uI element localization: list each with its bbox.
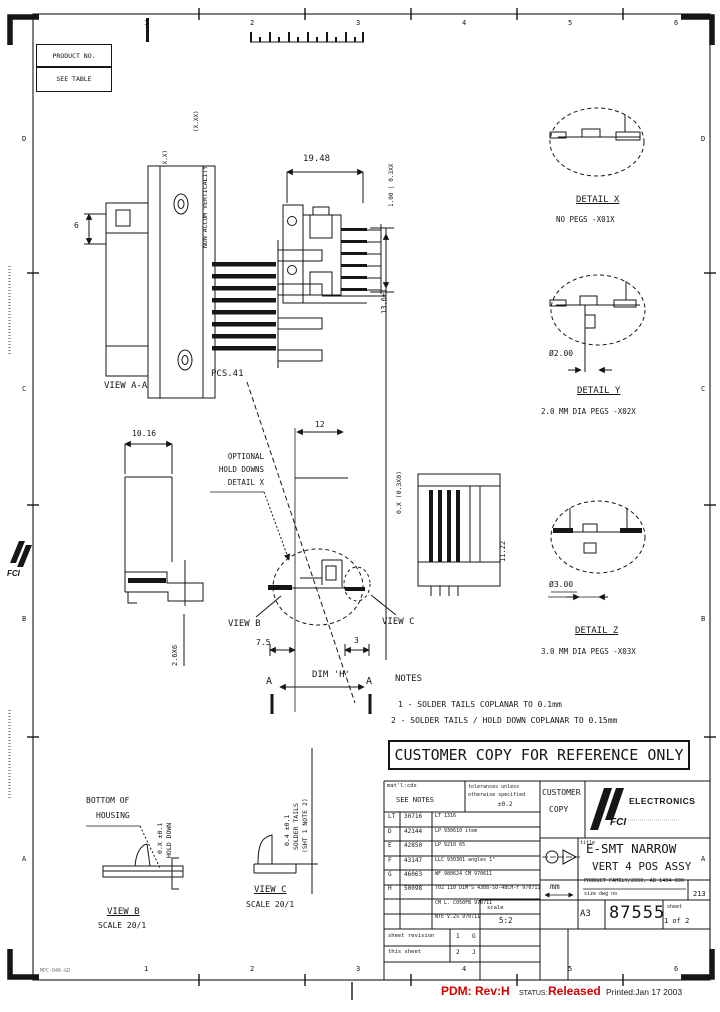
optional-line-1: OPTIONAL (210, 453, 264, 461)
detail-x-linework (550, 108, 644, 176)
notes-title: NOTES (395, 675, 422, 684)
rev-ecn: 30716 (404, 814, 422, 820)
section-letter-left: A (266, 677, 272, 687)
view-c-scale: SCALE 20/1 (246, 901, 294, 909)
dim-7-5: 7.5 (256, 639, 270, 647)
fci-logo-text: FCI (610, 818, 626, 828)
rev-desc: LP 930610 item (435, 829, 477, 834)
front-vdim-side: 13.6±1 (381, 289, 388, 314)
rev-ltr: G (388, 872, 392, 878)
scale-label: scale (487, 906, 504, 912)
sheet-value: 1 of 2 (664, 918, 689, 925)
rev-desc: CM L. C050FB 970711 (435, 901, 492, 906)
rev-ecn: 42850 (404, 843, 422, 849)
tolerance-value: ±0.2 (498, 802, 512, 808)
engineering-drawing-sheet: PRODUCT NO. SEE TABLE 1 2 3 4 5 6 1 2 3 … (0, 0, 720, 1012)
sheet-rev-rev-1: G (472, 934, 476, 940)
scale-value: 5:2 (499, 917, 513, 925)
vertical-dim-b: (X.XX) (194, 110, 200, 132)
third-angle-projection-symbol (542, 850, 580, 864)
calibration-comb (250, 32, 364, 42)
sheet-size: A3 (580, 910, 591, 919)
zone-bottom-4: 4 (462, 966, 466, 973)
zone-bottom-6: 6 (674, 966, 678, 973)
rev-ltr: F (388, 858, 392, 864)
status-label: STATUS: (519, 990, 548, 997)
rev-desc: LT 1316 (435, 814, 456, 819)
zone-left-d: D (22, 136, 26, 143)
zone-right-b: B (701, 616, 705, 623)
zone-right-a: A (701, 856, 705, 863)
tolerance-line2: otherwise specified (468, 793, 525, 798)
tail-dim: 0.X (0.3X0) (396, 471, 403, 514)
zone-top-1: 1 (144, 20, 148, 27)
sheet-rev-num-2: 2 (456, 950, 460, 956)
rev-ltr: H (388, 886, 392, 892)
housing-callout: HOUSING (96, 812, 130, 820)
customer-copy-1: CUSTOMER (542, 789, 581, 797)
zone-left-c: C (22, 386, 26, 393)
sheet-rev-label-1: sheet revision (388, 934, 434, 940)
detail-x-title: DETAIL X (576, 196, 619, 205)
rev-ltr: LT (388, 814, 395, 820)
pdm-revision: PDM: Rev:H (441, 985, 510, 997)
zone-left-a: A (22, 856, 26, 863)
solder-tail-vlabel2: (SHT 1 NOTE 2) (302, 798, 309, 853)
product-no-label: PRODUCT NO. (52, 52, 95, 60)
note-2: 2 - SOLDER TAILS / HOLD DOWN COPLANAR TO… (391, 717, 617, 725)
optional-line-3: DETAIL X (210, 479, 264, 487)
dim-12: 12 (315, 421, 325, 429)
see-notes: SEE NOTES (396, 797, 434, 804)
zone-bottom-3: 3 (356, 966, 360, 973)
zone-bottom-5: 5 (568, 966, 572, 973)
rev-ltr: E (388, 843, 392, 849)
rev-ltr: D (388, 829, 392, 835)
view-c-label: VIEW C (254, 886, 287, 895)
customer-copy-2: COPY (549, 806, 568, 814)
dim-h-label: DIM 'H' (312, 671, 350, 680)
rev-ecn: 42144 (404, 829, 422, 835)
drawing-title-line1: E-SMT NARROW (586, 843, 676, 856)
right-view-vdim: 11.22 (500, 541, 507, 562)
dim-height-6: 6 (74, 222, 79, 230)
zone-top-2: 2 (250, 20, 254, 27)
zone-left-b: B (22, 616, 26, 623)
printed-date: Printed:Jan 17 2003 (606, 988, 682, 997)
detail-x-sub: NO PEGS -X01X (556, 216, 615, 224)
electronics-label: ELECTRONICS (629, 797, 695, 806)
matl-label: mat'l:cds (387, 784, 417, 790)
detail-y-title: DETAIL Y (577, 387, 620, 396)
bottom-of-callout: BOTTOM OF (86, 797, 129, 805)
sheet-rev-num-1: 1 (456, 934, 460, 940)
dim-19-48: 19.48 (303, 155, 330, 164)
sheet-label: sheet (667, 905, 682, 910)
zone-top-4: 4 (462, 20, 466, 27)
profile-view-linework (125, 444, 203, 666)
view-b-label: VIEW B (107, 908, 140, 917)
view-b-scale: SCALE 20/1 (98, 922, 146, 930)
dim-10-16: 10.16 (132, 430, 156, 438)
rev-ecn: 46063 (404, 872, 422, 878)
view-b-ref: VIEW B (228, 620, 261, 629)
size-dwg-label: size dwg no (584, 892, 617, 897)
detail-z-dim: Ø3.00 (549, 581, 573, 589)
drawing-number: 87555 (609, 905, 665, 922)
zone-top-5: 5 (568, 20, 572, 27)
solder-tail-vdim: 0.4 ±0.1 (284, 815, 291, 846)
pcs-41-label: PCS.41 (211, 370, 244, 379)
detail-z-sub: 3.0 MM DIA PEGS -X03X (541, 648, 636, 656)
rev-ecn: 43147 (404, 858, 422, 864)
zone-bottom-2: 2 (250, 966, 254, 973)
fci-logo-side (10, 541, 32, 567)
verticality-note: NON ACCUM VERTICALITY (202, 166, 209, 248)
zone-top-3: 3 (356, 20, 360, 27)
product-family: PRODUCT FAMILY/2000, AB 1404 000 (584, 879, 684, 884)
profile-vdim-bottom: 2.6X6 (172, 645, 179, 666)
zone-bottom-1: 1 (144, 966, 148, 973)
note-1: 1 - SOLDER TAILS COPLANAR TO 0.1mm (398, 701, 562, 709)
drawing-title-line2: VERT 4 POS ASSY (592, 861, 691, 872)
right-connector-view-linework (418, 474, 500, 596)
detail-y-sub: 2.0 MM DIA PEGS -X02X (541, 408, 636, 416)
product-no-box: PRODUCT NO. (36, 44, 112, 68)
rev-desc: LLC 930301 angles 1° (435, 858, 495, 863)
rev-ecn: 50098 (404, 886, 422, 892)
vertical-dim-a: (X.X) (163, 150, 169, 168)
size-dwg-value: 213 (693, 891, 706, 898)
rev-desc: T02 110 DIM'S 4308-SO-48CH-F 970711 (435, 886, 540, 891)
rev-desc: WF 980624 CM 970611 (435, 872, 492, 877)
zone-right-d: D (701, 136, 705, 143)
banner-text: CUSTOMER COPY FOR REFERENCE ONLY (395, 746, 684, 764)
see-table-box: SEE TABLE (36, 66, 112, 92)
fci-side-logo-text: FCI (7, 570, 20, 578)
view-c-ref: VIEW C (382, 618, 415, 627)
hold-down-vdim: 0.X ±0.1 (157, 823, 164, 854)
see-table-label: SEE TABLE (56, 75, 91, 83)
dim-3: 3 (354, 637, 359, 645)
section-letter-right: A (366, 677, 372, 687)
hold-down-vlabel: HOLD DOWN (166, 823, 173, 858)
units-label: mm (550, 883, 560, 891)
sheet-rev-label-2: this sheet (388, 950, 421, 956)
sheet-rev-rev-2: J (472, 950, 476, 956)
zone-right-c: C (701, 386, 705, 393)
detail-z-title: DETAIL Z (575, 627, 618, 636)
front-vdim-top: 1.00 | 0.3XX (389, 164, 395, 207)
rev-desc: LP 9210 65 (435, 843, 465, 848)
customer-copy-banner: CUSTOMER COPY FOR REFERENCE ONLY (388, 740, 690, 770)
optional-line-2: HOLD DOWNS (210, 466, 264, 474)
detail-y-dim: Ø2.00 (549, 350, 573, 358)
form-number: MPC-046-GD (40, 969, 70, 974)
status-value: Released (548, 985, 601, 997)
rev-desc: NTE V.2s 970711 (435, 915, 480, 920)
solder-tail-vlabel1: SOLDER TAILS (293, 803, 300, 850)
tolerance-line1: tolerances unless (468, 785, 519, 790)
front-view-linework (283, 172, 394, 303)
zone-top-6: 6 (674, 20, 678, 27)
view-aa-label: VIEW A-A (104, 382, 147, 391)
